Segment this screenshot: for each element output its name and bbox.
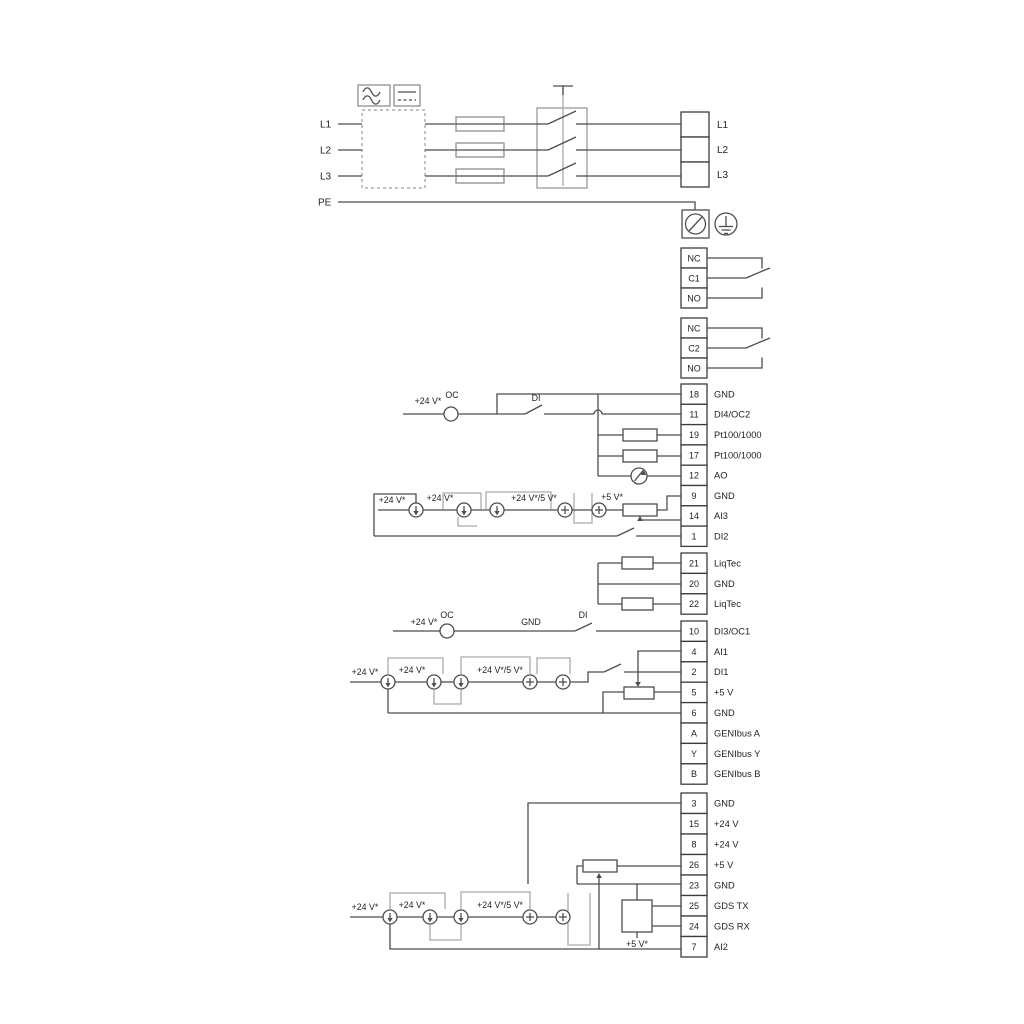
relay-contact-blade bbox=[746, 340, 765, 348]
terminal-number: 14 bbox=[689, 511, 699, 521]
label: +24 V* bbox=[427, 493, 454, 503]
arrow-head bbox=[596, 873, 602, 878]
terminal-number: 25 bbox=[689, 901, 699, 911]
label: +24 V* bbox=[399, 665, 426, 675]
wire bbox=[657, 496, 681, 510]
terminal-label: GENIbus B bbox=[714, 769, 761, 779]
relay-nc-wire bbox=[707, 328, 762, 339]
fuse-icon bbox=[456, 143, 504, 157]
ac-symbol-icon bbox=[358, 85, 390, 106]
liqtec-terminal-block: 21LiqTec20GND22LiqTec bbox=[681, 553, 741, 614]
mains-out-terminal-block: L1L2L3 bbox=[681, 112, 729, 187]
wiring-diagram-page: L1L2L3PEL1L2L3NCC1NONCC2NO+24 V*OCDI+24 … bbox=[0, 0, 1024, 1024]
relay-terminal-label: NO bbox=[687, 293, 701, 303]
terminal-number: 26 bbox=[689, 860, 699, 870]
terminal-label: LiqTec bbox=[714, 599, 741, 609]
voltage-source-icon bbox=[523, 910, 537, 924]
pe-wire bbox=[338, 202, 695, 210]
switch-blade-icon bbox=[604, 664, 621, 672]
current-source-icon bbox=[409, 503, 423, 517]
terminal-label: GDS TX bbox=[714, 901, 748, 911]
gds-box bbox=[622, 900, 652, 932]
wire bbox=[570, 672, 604, 682]
io-terminal-block-2: 10DI3/OC14AI12DI15+5 V6GNDAGENIbus AYGEN… bbox=[681, 621, 761, 784]
terminal-label: GND bbox=[714, 389, 735, 399]
source-row-ai3: +24 V*+24 V*+24 V*/5 V*+5 V* bbox=[374, 492, 681, 536]
terminal-label: AI2 bbox=[714, 942, 728, 952]
terminal-label: DI4/OC2 bbox=[714, 410, 750, 420]
io-section-2: +24 V*OCGNDDI+24 V*+24 V*+24 V*/5 V*10DI… bbox=[350, 610, 761, 784]
option-bracket bbox=[458, 517, 477, 526]
wire bbox=[603, 692, 624, 713]
fuse-icon bbox=[456, 117, 504, 131]
relay-terminal-label: NC bbox=[688, 323, 701, 333]
label: +24 V* bbox=[415, 396, 442, 406]
terminal-cell bbox=[681, 137, 709, 162]
di4-oc2-row: +24 V*OCDI bbox=[403, 390, 681, 421]
terminal-label: +5 V bbox=[714, 688, 734, 698]
terminal-number: 11 bbox=[689, 410, 698, 420]
option-bracket bbox=[430, 925, 461, 940]
current-source-icon bbox=[423, 910, 437, 924]
current-source-icon bbox=[427, 675, 441, 689]
option-bracket bbox=[574, 493, 592, 523]
relay-terminal-label: NO bbox=[687, 363, 701, 373]
label: +5 V* bbox=[601, 492, 623, 502]
power-in-label: L2 bbox=[320, 146, 332, 157]
terminal-label: LiqTec bbox=[714, 558, 741, 568]
terminal-label: GDS RX bbox=[714, 921, 750, 931]
dc-symbol-icon bbox=[394, 85, 420, 106]
relay-terminal-label: NC bbox=[688, 253, 701, 263]
terminal-number: 18 bbox=[689, 389, 699, 399]
terminal-number: 24 bbox=[689, 921, 699, 931]
arrow-head bbox=[635, 682, 641, 687]
voltage-source-icon bbox=[523, 675, 537, 689]
potentiometer-icon bbox=[583, 860, 617, 872]
terminal-number: 20 bbox=[689, 579, 699, 589]
option-bracket bbox=[434, 690, 461, 704]
terminal-cell bbox=[681, 162, 709, 187]
terminal-number: B bbox=[691, 769, 697, 779]
liqtec-section: 21LiqTec20GND22LiqTec bbox=[598, 553, 741, 614]
terminal-label: GND bbox=[714, 708, 735, 718]
current-source-icon bbox=[454, 910, 468, 924]
power-in-label: PE bbox=[318, 198, 332, 209]
terminal-label: +24 V bbox=[714, 819, 739, 829]
label: GND bbox=[521, 617, 541, 627]
label: +24 V*/5 V* bbox=[511, 493, 557, 503]
label: +24 V* bbox=[352, 667, 379, 677]
terminal-label: +5 V bbox=[714, 860, 734, 870]
terminal-number: 21 bbox=[689, 558, 699, 568]
wire bbox=[577, 866, 583, 884]
option-bracket bbox=[568, 893, 590, 945]
terminal-number: 6 bbox=[691, 708, 696, 718]
terminal-number: 9 bbox=[691, 491, 696, 501]
terminal-label: GND bbox=[714, 798, 735, 808]
label: OC bbox=[440, 610, 454, 620]
terminal-label: AI1 bbox=[714, 647, 728, 657]
terminal-number: 8 bbox=[691, 839, 696, 849]
io-section-3: +24 V*+24 V*+24 V*/5 V*+5 V*3GND15+24 V8… bbox=[350, 793, 750, 957]
label: +24 V* bbox=[352, 902, 379, 912]
label: OC bbox=[445, 390, 459, 400]
power-out-label: L1 bbox=[717, 120, 729, 131]
potentiometer-icon bbox=[624, 687, 654, 699]
io-section-1: +24 V*OCDI+24 V*+24 V*+24 V*/5 V*+5 V*18… bbox=[374, 384, 762, 546]
label: DI bbox=[579, 610, 588, 620]
source-row-ai1: +24 V*+24 V*+24 V*/5 V* bbox=[350, 651, 681, 713]
terminal-label: GND bbox=[714, 880, 735, 890]
relay-2: NCC2NO bbox=[681, 318, 770, 378]
terminal-label: AI3 bbox=[714, 511, 728, 521]
resistor-icon bbox=[623, 429, 657, 441]
filter-box bbox=[362, 110, 425, 188]
io-terminal-block-1: 18GND11DI4/OC219Pt100/100017Pt100/100012… bbox=[681, 384, 762, 546]
power-out-label: L2 bbox=[717, 145, 729, 156]
earth-ground-icon bbox=[715, 213, 737, 235]
switch-blade-icon bbox=[548, 111, 576, 124]
relay-contact-blade bbox=[746, 270, 765, 278]
label: +24 V* bbox=[379, 495, 406, 505]
terminal-number: 10 bbox=[689, 626, 699, 636]
terminal-label: DI1 bbox=[714, 667, 728, 677]
power-out-label: L3 bbox=[717, 170, 729, 181]
terminal-number: 12 bbox=[689, 471, 699, 481]
voltage-source-icon bbox=[556, 910, 570, 924]
potentiometer-ai1 bbox=[603, 651, 681, 713]
screw-terminal-icon bbox=[682, 210, 709, 238]
ao-output bbox=[598, 468, 681, 484]
label: +24 V*/5 V* bbox=[477, 900, 523, 910]
terminal-label: GENIbus Y bbox=[714, 749, 760, 759]
current-source-icon bbox=[490, 503, 504, 517]
terminal-label: DI2 bbox=[714, 531, 728, 541]
resistor-icon bbox=[622, 598, 653, 610]
switch-blade-icon bbox=[575, 623, 592, 631]
terminal-number: 19 bbox=[689, 430, 699, 440]
switch-blade-icon bbox=[548, 137, 576, 150]
open-collector-icon bbox=[440, 624, 454, 638]
wiring-diagram-svg: L1L2L3PEL1L2L3NCC1NONCC2NO+24 V*OCDI+24 … bbox=[0, 0, 1024, 1024]
terminal-cell bbox=[681, 112, 709, 137]
terminal-label: DI3/OC1 bbox=[714, 626, 750, 636]
terminal-number: 1 bbox=[691, 531, 696, 541]
gnd-wire bbox=[497, 394, 681, 414]
switch-blade-icon bbox=[548, 163, 576, 176]
terminal-number: 15 bbox=[689, 819, 699, 829]
label: +24 V* bbox=[411, 617, 438, 627]
terminal-label: GND bbox=[714, 579, 735, 589]
terminal-label: Pt100/1000 bbox=[714, 450, 762, 460]
label: +24 V*/5 V* bbox=[477, 665, 523, 675]
voltage-source-icon bbox=[556, 675, 570, 689]
dc-box bbox=[394, 85, 420, 106]
pt100-sensors bbox=[598, 394, 681, 476]
power-in-label: L3 bbox=[320, 172, 332, 183]
relay-1: NCC1NO bbox=[681, 248, 770, 308]
gds-sensor-box: +5 V* bbox=[622, 884, 681, 949]
relay-no-wire bbox=[707, 358, 762, 369]
terminal-number: 5 bbox=[691, 688, 696, 698]
label: +5 V* bbox=[626, 939, 648, 949]
relay-contact-tip bbox=[765, 268, 770, 270]
current-source-icon bbox=[381, 675, 395, 689]
io-terminal-block-3: 3GND15+24 V8+24 V26+5 V23GND25GDS TX24GD… bbox=[681, 793, 750, 957]
terminal-number: 17 bbox=[689, 450, 699, 460]
terminal-number: 7 bbox=[691, 942, 696, 952]
terminal-number: 2 bbox=[691, 667, 696, 677]
relay-terminal-label: C1 bbox=[688, 273, 700, 283]
terminal-number: 4 bbox=[691, 647, 696, 657]
voltage-source-icon bbox=[592, 503, 606, 517]
mains-section: L1L2L3PEL1L2L3 bbox=[318, 85, 737, 238]
fuse-icon bbox=[456, 169, 504, 183]
di3-oc1-row: +24 V*OCGNDDI bbox=[393, 610, 681, 638]
terminal-number: 22 bbox=[689, 599, 699, 609]
terminal-label: Pt100/1000 bbox=[714, 430, 762, 440]
main-switch-icon bbox=[537, 86, 587, 188]
relay-nc-wire bbox=[707, 258, 762, 269]
current-source-icon bbox=[383, 910, 397, 924]
potentiometer-ai3 bbox=[623, 504, 681, 521]
terminal-number: Y bbox=[691, 749, 697, 759]
potentiometer-icon bbox=[623, 504, 657, 516]
terminal-label: +24 V bbox=[714, 839, 739, 849]
current-source-icon bbox=[457, 503, 471, 517]
terminal-number: A bbox=[691, 728, 697, 738]
open-collector-icon bbox=[444, 407, 458, 421]
power-in-label: L1 bbox=[320, 120, 332, 131]
resistor-icon bbox=[623, 450, 657, 462]
switch-blade-icon bbox=[617, 528, 634, 536]
resistor-icon bbox=[622, 557, 653, 569]
terminal-number: 3 bbox=[691, 798, 696, 808]
terminal-label: GND bbox=[714, 491, 735, 501]
label: +24 V* bbox=[399, 900, 426, 910]
option-bracket bbox=[537, 658, 570, 674]
relay-terminal-label: C2 bbox=[688, 343, 700, 353]
switch-blade-icon bbox=[525, 405, 542, 414]
relay-contact-tip bbox=[765, 338, 770, 340]
terminal-number: 23 bbox=[689, 880, 699, 890]
source-row-ai2: +24 V*+24 V*+24 V*/5 V* bbox=[350, 892, 599, 949]
relay-no-wire bbox=[707, 288, 762, 299]
wiper-wire bbox=[638, 651, 681, 683]
current-source-icon bbox=[454, 675, 468, 689]
voltage-source-icon bbox=[558, 503, 572, 517]
terminal-label: GENIbus A bbox=[714, 728, 761, 738]
terminal-label: AO bbox=[714, 471, 727, 481]
